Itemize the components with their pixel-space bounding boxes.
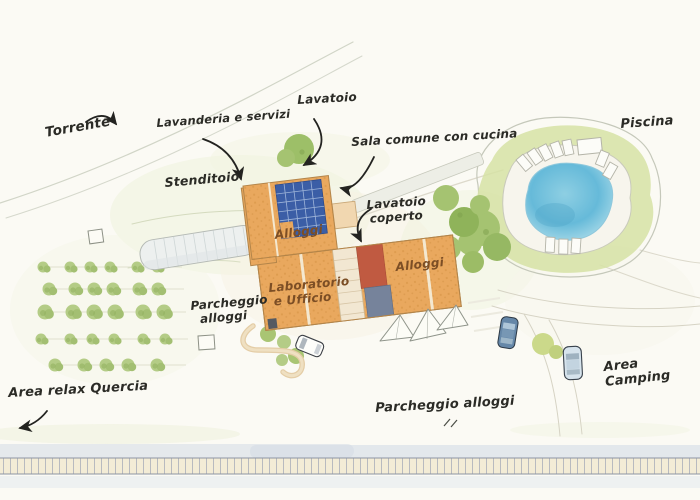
car-blue-light [563, 346, 583, 380]
sun-lounger [571, 238, 581, 254]
doorway [267, 318, 277, 329]
square-marker-2 [198, 335, 215, 350]
map-illustration [0, 0, 700, 500]
car-blue-dark [497, 316, 519, 349]
site-map: TorrenteLavanderia e serviziLavatoioSala… [0, 0, 700, 500]
square-marker-1 [88, 229, 104, 244]
sun-lounger [559, 239, 568, 254]
solar-panels [275, 179, 327, 238]
pool-pavilion [577, 137, 602, 154]
torrente-arrow [86, 116, 116, 124]
slate-roof-section [364, 285, 393, 318]
covered-washhouse-roof [356, 244, 387, 289]
bush-camping-2 [549, 345, 563, 359]
small-outbuilding [332, 201, 358, 229]
hatch-marks [444, 419, 457, 427]
sun-lounger [545, 237, 555, 252]
